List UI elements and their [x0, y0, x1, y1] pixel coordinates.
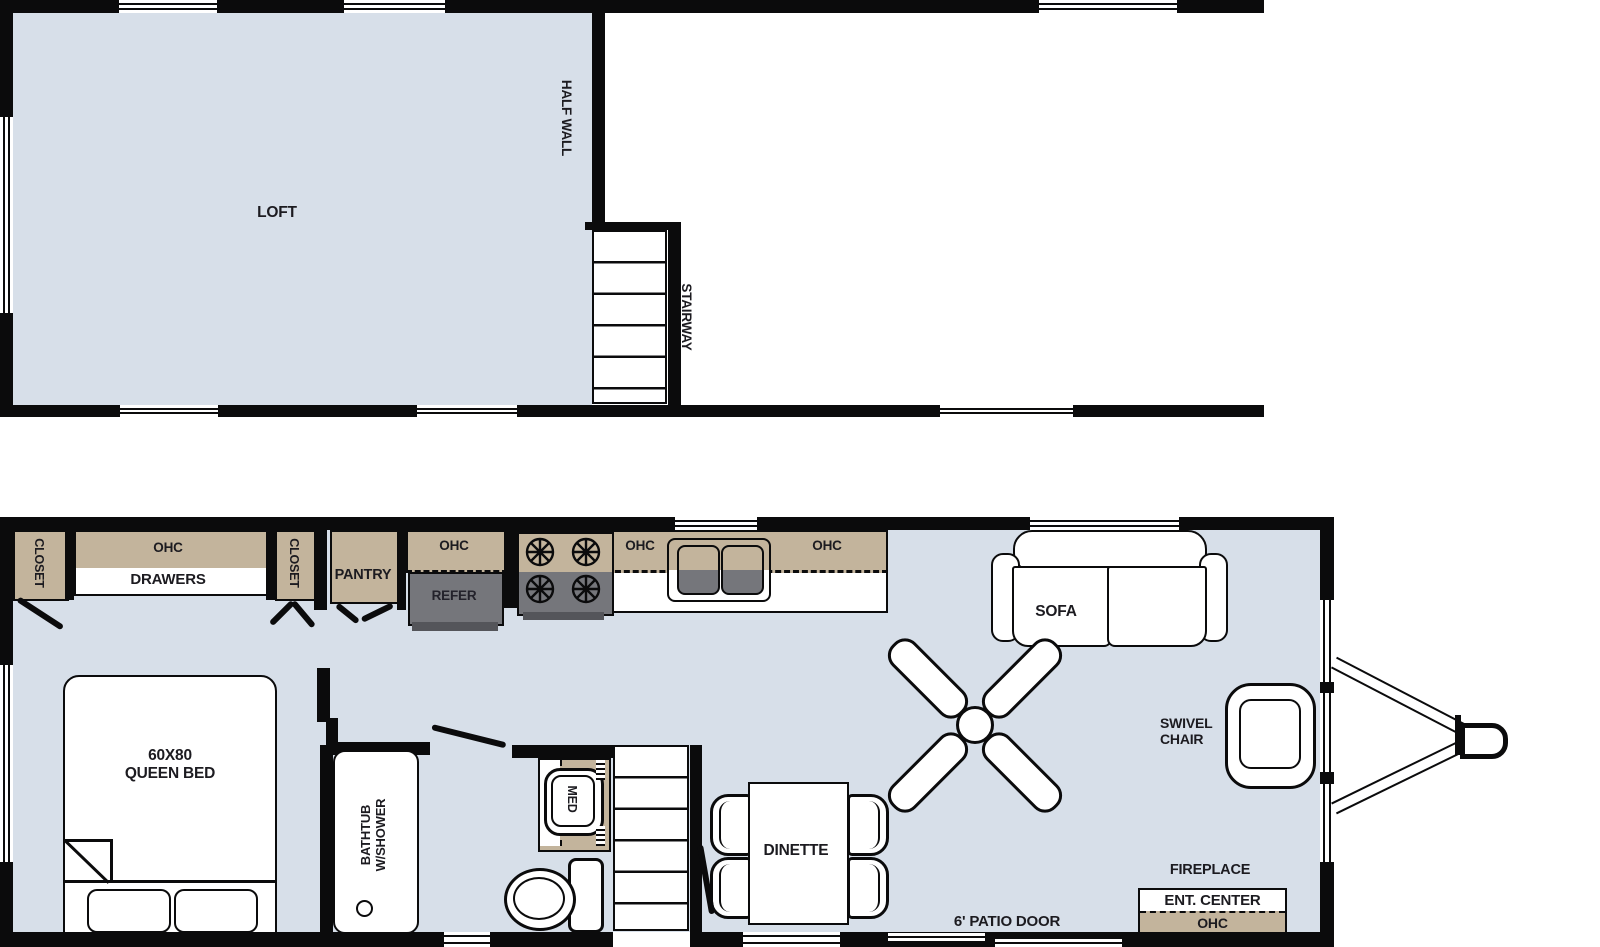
loft-label: LOFT — [227, 203, 327, 223]
wall — [65, 530, 74, 600]
wall — [320, 745, 333, 932]
stair-side-wall — [690, 745, 702, 932]
bathtub-label: BATHTUB W/SHOWER — [356, 760, 392, 910]
half-wall-label: HALF WALL — [557, 58, 575, 178]
dinette-chair — [847, 794, 889, 856]
entry-door-opening — [613, 932, 690, 947]
hitch-coupler — [1460, 723, 1508, 759]
bathtub-label-line1: BATHTUB — [359, 805, 374, 865]
ohc-refer-label: OHC — [414, 538, 494, 554]
window — [1320, 784, 1334, 862]
window — [1039, 0, 1177, 13]
stairway-steps — [613, 745, 689, 931]
ent-center-label: ENT. CENTER — [1140, 892, 1285, 909]
wall — [512, 745, 613, 758]
dinette-chair — [710, 857, 752, 919]
fan-hub — [956, 706, 994, 744]
sofa-label: SOFA — [1016, 603, 1096, 621]
main-floor-plan: 60X80 QUEEN BED BATHTUB W/SHOWER — [0, 517, 1600, 947]
fireplace-label: FIREPLACE — [1140, 862, 1280, 879]
window — [1320, 693, 1334, 772]
ohc-kitchen-label-1: OHC — [600, 538, 680, 554]
sink-basin — [677, 545, 720, 595]
ohc-bedroom-label: OHC — [128, 540, 208, 556]
pillow — [87, 889, 171, 933]
window — [0, 117, 13, 313]
wall — [504, 530, 517, 608]
bathtub-label-line2: W/SHOWER — [374, 799, 389, 872]
stairway-steps — [592, 230, 667, 404]
swivel-chair-seat — [1239, 699, 1301, 769]
refer-label: REFER — [414, 588, 494, 604]
queen-bed: 60X80 QUEEN BED — [63, 675, 277, 936]
hinge-hatch — [596, 826, 605, 846]
patio-door-label: 6' PATIO DOOR — [927, 913, 1087, 930]
sofa-seat — [1107, 566, 1207, 647]
window — [344, 0, 445, 13]
hitch-arm — [1331, 657, 1467, 736]
ent-center-ohc: OHC — [1140, 911, 1285, 934]
window — [417, 405, 517, 417]
wall — [266, 530, 275, 600]
patio-door-panel — [888, 933, 985, 941]
wall — [317, 668, 330, 722]
pillow — [174, 889, 258, 933]
drawers-label: DRAWERS — [118, 571, 218, 588]
floorplan-canvas: LOFT HALF WALL STAIRWAY — [0, 0, 1600, 947]
mattress-line — [65, 880, 275, 883]
ent-center-ohc-label: OHC — [1140, 915, 1285, 932]
blanket-fold — [65, 839, 110, 842]
window — [1320, 600, 1334, 682]
dinette-chair — [847, 857, 889, 919]
window — [0, 665, 13, 862]
closet-left-label: CLOSET — [31, 528, 47, 598]
window — [675, 517, 757, 530]
sink-basin — [721, 545, 764, 595]
blanket-fold — [110, 839, 113, 880]
window — [444, 932, 490, 947]
toilet-bowl-inner — [513, 877, 565, 920]
patio-door-panel — [995, 939, 1122, 947]
closet-right-label: CLOSET — [286, 528, 302, 598]
wall — [326, 718, 338, 745]
refrigerator-base — [412, 622, 498, 631]
hinge-hatch — [596, 760, 605, 780]
ent-center: ENT. CENTER OHC — [1138, 888, 1287, 936]
dinette-label: DINETTE — [746, 842, 846, 860]
bed-type-label: QUEEN BED — [65, 765, 275, 783]
window — [120, 405, 218, 417]
window — [119, 0, 217, 13]
swivel-label-line1: SWIVEL — [1160, 715, 1212, 731]
blanket-fold-diagonal — [64, 839, 110, 883]
stairway-label: STAIRWAY — [677, 262, 695, 372]
med-label: MED — [562, 779, 582, 819]
window — [940, 405, 1073, 417]
swivel-label-line2: CHAIR — [1160, 731, 1203, 747]
stove-burners-icon — [517, 532, 610, 612]
bed-size-label: 60X80 — [65, 747, 275, 765]
swivel-chair-label: SWIVEL CHAIR — [1160, 713, 1222, 749]
ohc-kitchen-label-2: OHC — [787, 538, 867, 554]
window — [1030, 517, 1179, 530]
window — [743, 932, 840, 947]
pantry-label: PANTRY — [323, 567, 403, 584]
hitch-arm — [1331, 740, 1465, 814]
stove-base — [523, 612, 604, 620]
stair-cap-wall — [585, 222, 681, 230]
upper-floor-plan: LOFT HALF WALL STAIRWAY — [0, 0, 1500, 430]
